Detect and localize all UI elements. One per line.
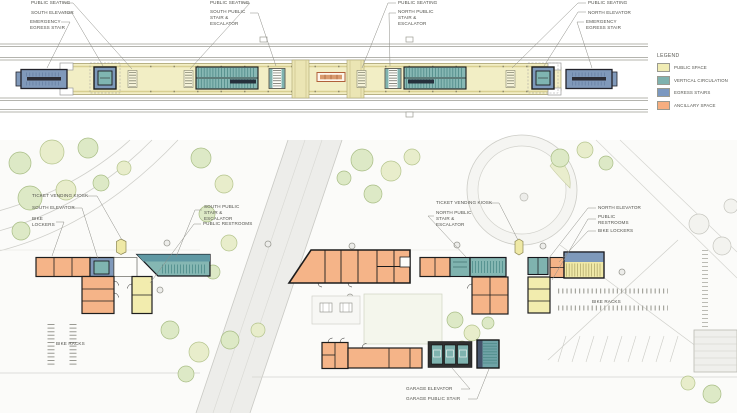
south-platform-stair [269, 69, 285, 89]
north-escalator-bank [404, 67, 466, 89]
label-public-seating-s: PUBLIC SEATING [210, 0, 249, 6]
central-ancillary-building [289, 250, 410, 287]
label-emergency-egress-south: EMERGENCY EGRESS STAIR [30, 19, 70, 31]
legend: LEGEND PUBLIC SPACE VERTICAL CIRCULATION… [657, 53, 737, 113]
garage-elevator-block [428, 342, 472, 368]
label-south-elevator-platform: SOUTH ELEVATOR [31, 10, 74, 16]
south-elevator-shaft [90, 63, 120, 93]
vertical-circulation-swatch [657, 76, 670, 85]
label-garage-stair: GARAGE PUBLIC STAIR [406, 396, 460, 402]
label-bike-racks-north: BIKE RACKS [592, 299, 621, 305]
ticket-kiosk-north-shape [515, 239, 523, 255]
south-egress-stair [16, 63, 73, 95]
label-public-restrooms-south: PUBLIC RESTROOMS [203, 221, 252, 227]
legend-item-ancillary-space: ANCILLARY SPACE [657, 101, 737, 110]
label-bike-racks-south: BIKE RACKS [56, 341, 85, 347]
legend-item-public-space: PUBLIC SPACE [657, 63, 737, 72]
label-south-stair-site: SOUTH PUBLIC STAIR & ESCALATOR [204, 204, 252, 222]
legend-item-egress-stairs: EGRESS STAIRS [657, 88, 737, 97]
label-south-stair-platform: SOUTH PUBLIC STAIR & ESCALATOR [210, 9, 258, 27]
label-garage-elevator: GARAGE ELEVATOR [406, 386, 452, 392]
platform-center-kiosk [317, 73, 345, 82]
platform-leader-lines [47, 3, 592, 69]
garage-stair-block [477, 340, 499, 368]
label-ticket-kiosk-south: TICKET VENDING KIOSK [32, 193, 88, 199]
label-public-seating-ne: PUBLIC SEATING [588, 0, 627, 6]
label-emergency-egress-north: EMERGENCY EGRESS STAIR [586, 19, 626, 31]
label-public-seating-sw: PUBLIC SEATING [31, 0, 70, 6]
label-north-stair-site: NORTH PUBLIC STAIR & ESCALATOR [436, 210, 484, 228]
north-elevator-shaft [528, 63, 558, 93]
ancillary-space-swatch [657, 101, 670, 110]
north-platform-stair [385, 69, 401, 89]
legend-item-vertical-circulation: VERTICAL CIRCULATION [657, 76, 737, 85]
label-north-elevator-platform: NORTH ELEVATOR [588, 10, 631, 16]
station-plan-sheet: PUBLIC SEATING SOUTH ELEVATOR EMERGENCY … [0, 0, 737, 413]
label-south-elevator-site: SOUTH ELEVATOR [32, 205, 75, 211]
label-bike-lockers-north: BIKE LOCKERS [598, 228, 633, 234]
legend-label: VERTICAL CIRCULATION [674, 78, 728, 83]
south-escalator-bank [196, 67, 258, 89]
label-north-stair-platform: NORTH PUBLIC STAIR & ESCALATOR [398, 9, 446, 27]
ticket-kiosk-south-shape [117, 239, 127, 255]
legend-label: PUBLIC SPACE [674, 65, 707, 70]
public-space-swatch [657, 63, 670, 72]
label-public-seating-n: PUBLIC SEATING [398, 0, 437, 6]
egress-stairs-swatch [657, 88, 670, 97]
legend-label: ANCILLARY SPACE [674, 103, 716, 108]
label-public-restrooms-north: PUBLIC RESTROOMS [598, 214, 626, 226]
legend-title: LEGEND [657, 53, 737, 59]
label-bike-lockers-south: BIKE LOCKERS [32, 216, 54, 228]
label-ticket-kiosk-north: TICKET VENDING KIOSK [436, 200, 492, 206]
label-north-elevator-site: NORTH ELEVATOR [598, 205, 641, 211]
legend-label: EGRESS STAIRS [674, 90, 710, 95]
